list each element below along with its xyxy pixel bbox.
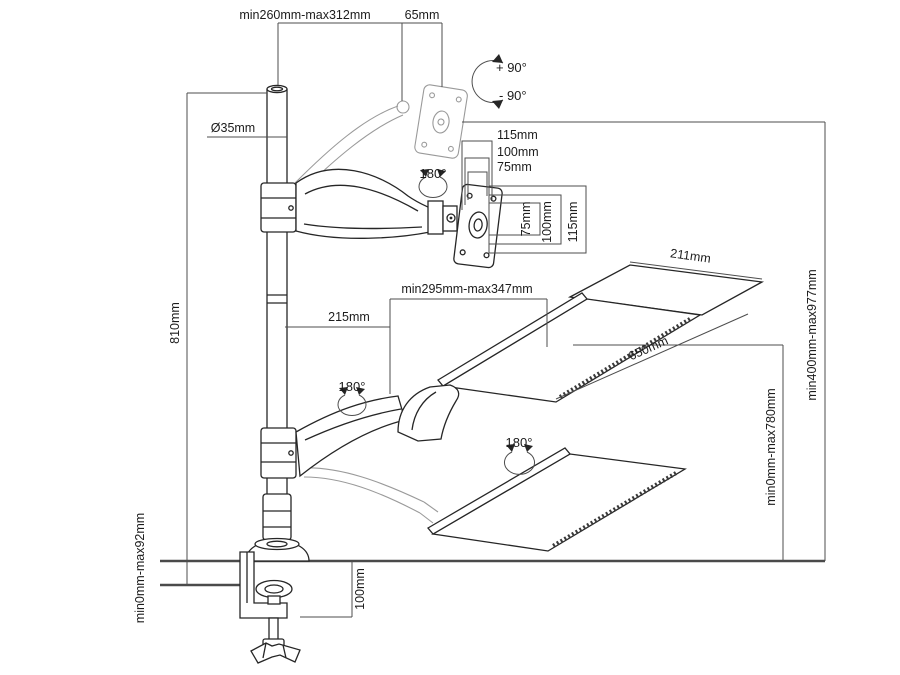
tray-tilter-head [398,385,459,441]
arm-inner-span-label: 215mm [328,310,370,324]
tilt-down-label: - 90° [499,88,527,103]
surface-main-panel [443,299,700,402]
pole [246,85,309,561]
arm-outer-span-label: min295mm-max347mm [401,282,532,296]
upper-arm-collar [261,183,296,232]
vesa-height-75-label: 75mm [519,202,533,237]
tray-travel-range-label: min0mm-max780mm [764,388,778,505]
vesa-height-100-label: 100mm [540,201,554,243]
top-offset-label: 65mm [405,8,440,22]
clamp-pad [256,581,292,598]
dimension-diagram: 115mm 100mm 75mm 75mm 100mm 115mm [0,0,900,675]
rotation-tray-label: 180° [506,435,533,450]
vesa-width-75-label: 75mm [497,160,532,174]
pole-diameter-label: Ø35mm [211,121,255,135]
clamp-height-label: 100mm [353,568,367,610]
monitor-arm-drawing: 115mm 100mm 75mm 75mm 100mm 115mm [0,0,900,675]
monitor-plate [453,184,502,268]
lower-arm-ghost [300,468,438,523]
arm-clevis [428,201,443,234]
vesa-width-100-label: 100mm [497,145,539,159]
desk-clamp [240,552,300,663]
pole-height-label: 810mm [168,302,182,344]
height-range-label: min400mm-max977mm [805,269,819,400]
vesa-height-115-label: 115mm [566,202,580,243]
rotation-monitor-label: 180° [420,166,447,181]
work-surface-lowered [428,448,685,551]
vesa-width-115-label: 115mm [497,128,538,142]
clamp-handle [251,643,300,663]
lower-arm [296,385,459,476]
desk-surface [160,561,825,585]
tray-depth-label: 211mm [669,246,711,266]
upper-arm [296,169,503,268]
top-span-label: min260mm-max312mm [239,8,370,22]
monitor-plate-ghost [414,84,468,159]
tilt-up-label: + 90° [496,60,527,75]
rotation-pole-label: 180° [339,379,366,394]
desk-thickness-range-label: min0mm-max92mm [133,513,147,623]
lower-arm-collar [261,428,296,478]
